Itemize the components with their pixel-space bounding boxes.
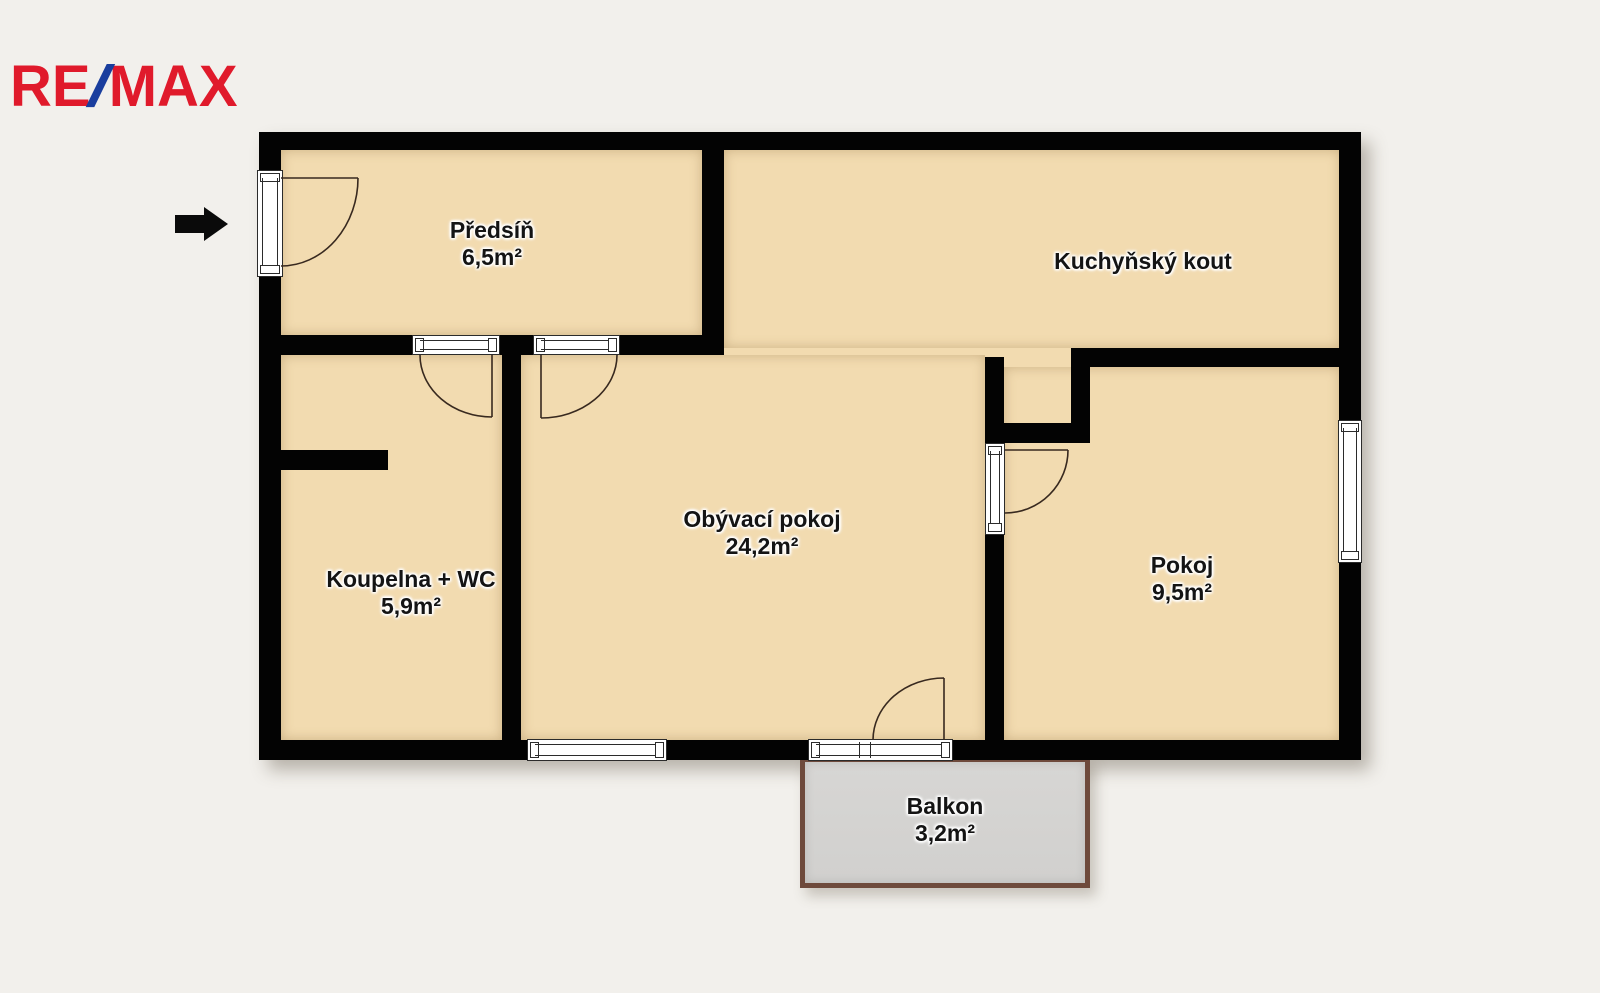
label-kuchynsky-kout-name: Kuchyňský kout: [983, 248, 1303, 275]
entrance-arrow-icon: [175, 207, 228, 241]
label-kuchynsky-kout: Kuchyňský kout: [983, 248, 1303, 275]
label-obyvaci-pokoj-area: 24,2m²: [602, 533, 922, 560]
label-pokoj-area: 9,5m²: [1022, 579, 1342, 606]
wall-pokoj-top: [1071, 348, 1340, 367]
wall-bottom-left: [259, 740, 528, 760]
living-window-glass: [535, 744, 659, 756]
wall-hall-bottom-a: [278, 335, 412, 355]
wall-bottom-right: [952, 740, 1361, 760]
balcony-door-window: [808, 739, 953, 761]
room-shade-bathroom: [281, 355, 502, 740]
label-pokoj-name: Pokoj: [1022, 552, 1342, 579]
label-koupelna-area: 5,9m²: [251, 593, 571, 620]
wall-left-upper: [259, 132, 281, 172]
entrance-door-glass: [262, 178, 278, 269]
wall-bottom-middle: [666, 740, 809, 760]
label-obyvaci-pokoj-name: Obývací pokoj: [602, 506, 922, 533]
pokoj-door-glass: [990, 451, 1000, 527]
wall-right-upper: [1339, 132, 1361, 421]
pokoj-window-glass: [1343, 428, 1357, 555]
bathroom-door-frame: [412, 335, 500, 355]
balcony-door-glass: [816, 744, 945, 756]
wall-bathroom-stub: [278, 450, 388, 470]
label-balkon-area: 3,2m²: [785, 820, 1105, 847]
remax-logo-re: RE: [10, 54, 91, 119]
remax-logo-max: MAX: [109, 54, 238, 119]
wall-hall-living-divider: [702, 150, 724, 355]
living-door-frame: [533, 335, 620, 355]
label-obyvaci-pokoj: Obývací pokoj 24,2m²: [602, 506, 922, 560]
label-predsin-name: Předsíň: [332, 217, 652, 244]
label-predsin: Předsíň 6,5m²: [332, 217, 652, 271]
wall-top: [259, 132, 1361, 150]
wall-hall-bottom-c: [619, 335, 704, 355]
label-koupelna-name: Koupelna + WC: [251, 566, 571, 593]
pokoj-door-frame: [985, 443, 1005, 535]
label-pokoj: Pokoj 9,5m²: [1022, 552, 1342, 606]
wall-bath-living-divider: [502, 355, 521, 740]
wall-hall-bottom-b: [500, 335, 534, 355]
wall-living-pokoj-divider: [985, 534, 1004, 740]
label-balkon: Balkon 3,2m²: [785, 793, 1105, 847]
living-door-glass: [541, 340, 612, 350]
label-predsin-area: 6,5m²: [332, 244, 652, 271]
balcony-door-mullion: [859, 742, 871, 758]
remax-logo: RE/MAX: [10, 58, 238, 116]
living-window: [527, 739, 667, 761]
label-balkon-name: Balkon: [785, 793, 1105, 820]
bathroom-door-glass: [420, 340, 492, 350]
label-koupelna: Koupelna + WC 5,9m²: [251, 566, 571, 620]
entrance-door-frame: [257, 170, 283, 277]
wall-right-lower: [1339, 562, 1361, 760]
pokoj-window: [1338, 420, 1362, 563]
